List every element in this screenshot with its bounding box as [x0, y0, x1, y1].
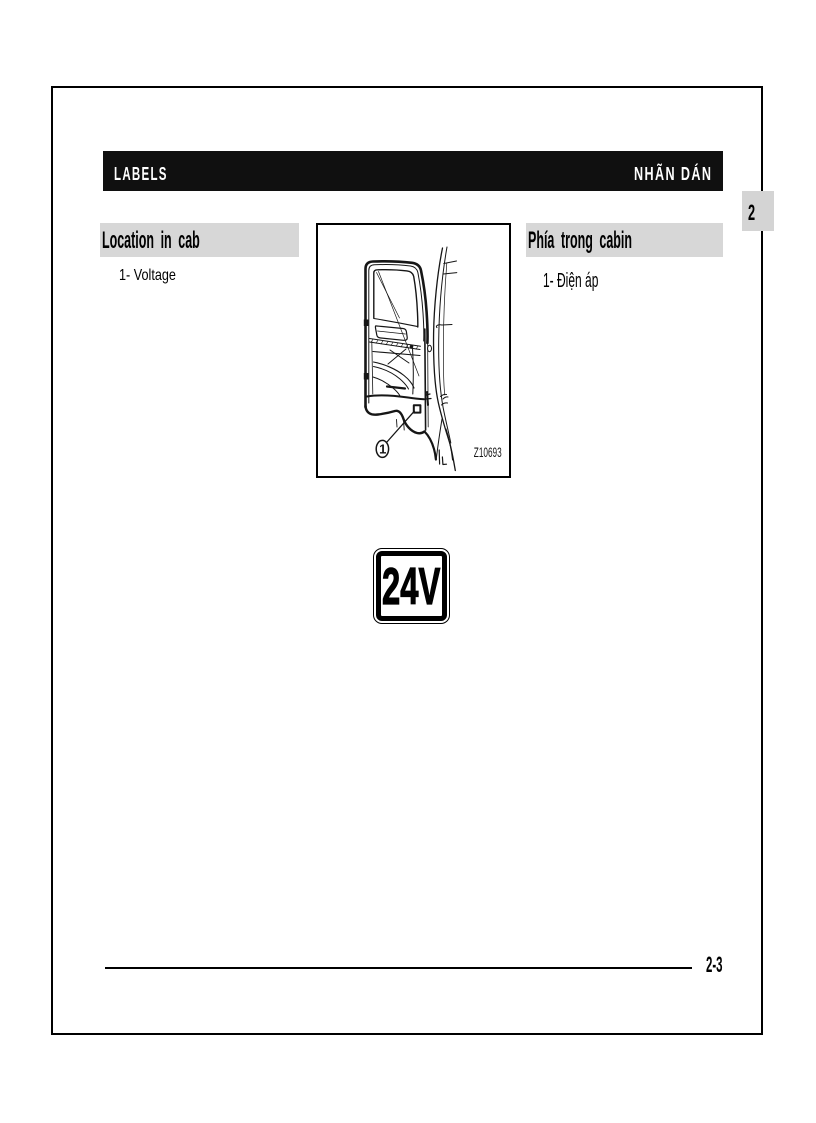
svg-text:Z10693: Z10693: [474, 445, 502, 461]
svg-text:1: 1: [379, 442, 386, 457]
